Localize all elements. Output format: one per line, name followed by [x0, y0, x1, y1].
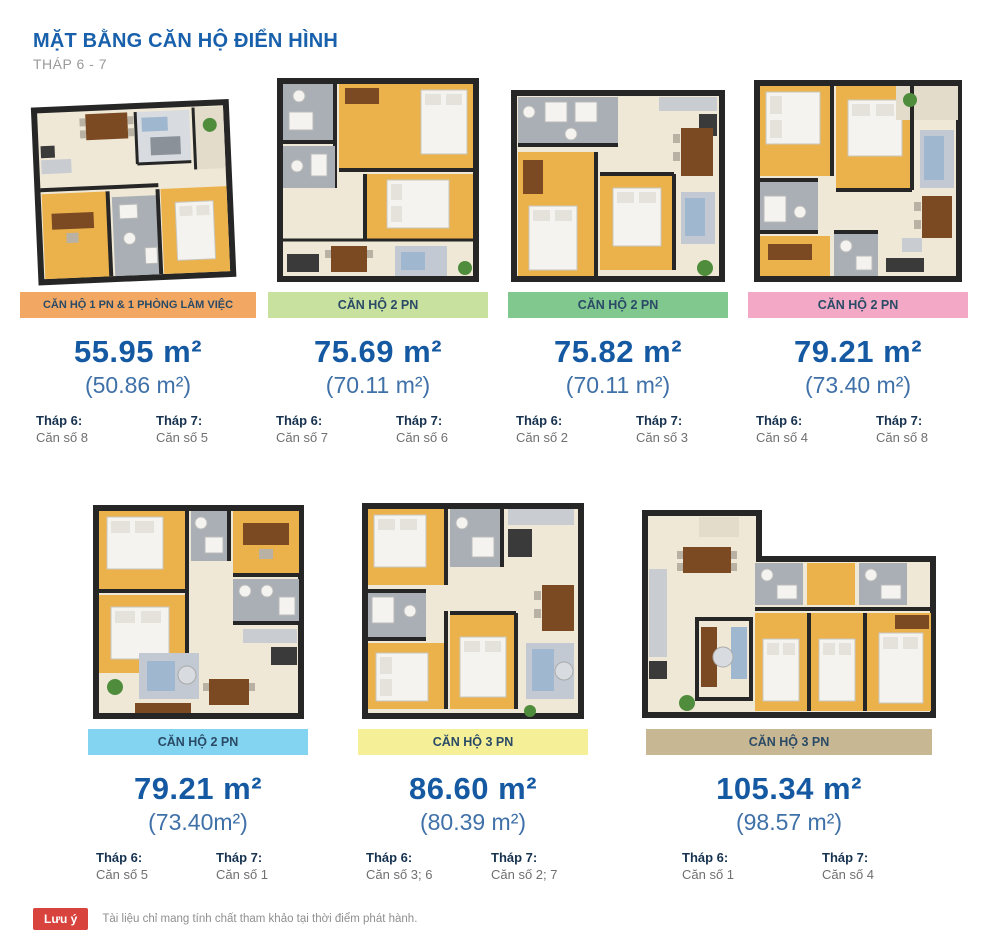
- tower-7-unit-number: Căn số 3: [636, 430, 738, 445]
- note-text: Tài liệu chỉ mang tính chất tham khảo tạ…: [102, 913, 417, 925]
- unit-type-label: CĂN HỘ 2 PN: [508, 292, 729, 318]
- floor-plan-unit-7: [639, 497, 939, 721]
- tower-6-unit-number: Căn số 7: [276, 430, 378, 445]
- tower-6-info: Tháp 6: Căn số 5: [78, 850, 198, 882]
- unit-area-net: (70.11 m²): [326, 372, 430, 399]
- tower-7-info: Tháp 7: Căn số 4: [804, 850, 944, 882]
- tower-7-info: Tháp 7: Căn số 1: [198, 850, 318, 882]
- tower-7-unit-number: Căn số 4: [822, 867, 944, 882]
- tower-7-label: Tháp 7:: [636, 413, 738, 428]
- tower-7-label: Tháp 7:: [822, 850, 944, 865]
- tower-7-info: Tháp 7: Căn số 6: [378, 413, 498, 445]
- floor-plan-unit-3: [509, 72, 727, 284]
- tower-7-info: Tháp 7: Căn số 3: [618, 413, 738, 445]
- tower-6-unit-number: Căn số 5: [96, 867, 198, 882]
- tower-info: Tháp 6: Căn số 8 Tháp 7: Căn số 5: [18, 413, 258, 445]
- tower-6-label: Tháp 6:: [756, 413, 858, 428]
- floor-plan-unit-1: [27, 67, 248, 288]
- unit-row-2: CĂN HỘ 2 PN 79.21 m² (73.40m²) Tháp 6: C…: [78, 497, 1000, 882]
- tower-7-info: Tháp 7: Căn số 5: [138, 413, 258, 445]
- tower-7-info: Tháp 7: Căn số 8: [858, 413, 978, 445]
- unit-card-6: CĂN HỘ 3 PN 86.60 m² (80.39 m²) Tháp 6: …: [348, 497, 598, 882]
- tower-6-unit-number: Căn số 2: [516, 430, 618, 445]
- tower-7-info: Tháp 7: Căn số 2; 7: [473, 850, 598, 882]
- tower-6-unit-number: Căn số 1: [682, 867, 804, 882]
- unit-card-7: CĂN HỘ 3 PN 105.34 m² (98.57 m²) Tháp 6:…: [634, 497, 944, 882]
- unit-type-label: CĂN HỘ 2 PN: [748, 292, 969, 318]
- unit-area: 105.34 m²: [716, 771, 862, 807]
- unit-type-label: CĂN HỘ 2 PN: [268, 292, 489, 318]
- unit-type-label: CĂN HỘ 1 PN & 1 PHÒNG LÀM VIỆC: [20, 292, 255, 318]
- tower-6-unit-number: Căn số 8: [36, 430, 138, 445]
- tower-7-label: Tháp 7:: [491, 850, 598, 865]
- tower-7-unit-number: Căn số 5: [156, 430, 258, 445]
- tower-7-label: Tháp 7:: [156, 413, 258, 428]
- unit-area-net: (70.11 m²): [566, 372, 670, 399]
- unit-area: 75.69 m²: [314, 334, 442, 370]
- unit-area: 79.21 m²: [794, 334, 922, 370]
- tower-7-unit-number: Căn số 1: [216, 867, 318, 882]
- unit-area: 55.95 m²: [74, 334, 202, 370]
- unit-area: 79.21 m²: [134, 771, 262, 807]
- tower-6-info: Tháp 6: Căn số 7: [258, 413, 378, 445]
- unit-type-label: CĂN HỘ 3 PN: [358, 729, 588, 755]
- tower-6-unit-number: Căn số 3; 6: [366, 867, 473, 882]
- floor-plan-unit-4: [752, 72, 964, 284]
- floor-plan-unit-6: [360, 497, 586, 721]
- tower-6-info: Tháp 6: Căn số 3; 6: [348, 850, 473, 882]
- unit-area-net: (50.86 m²): [85, 372, 191, 399]
- note-badge: Lưu ý: [33, 908, 88, 930]
- unit-card-4: CĂN HỘ 2 PN 79.21 m² (73.40 m²) Tháp 6: …: [738, 72, 978, 445]
- unit-card-1: CĂN HỘ 1 PN & 1 PHÒNG LÀM VIỆC 55.95 m² …: [18, 72, 258, 445]
- tower-7-label: Tháp 7:: [216, 850, 318, 865]
- tower-info: Tháp 6: Căn số 2 Tháp 7: Căn số 3: [498, 413, 738, 445]
- tower-info: Tháp 6: Căn số 5 Tháp 7: Căn số 1: [78, 850, 318, 882]
- tower-6-unit-number: Căn số 4: [756, 430, 858, 445]
- page-header: MẶT BẰNG CĂN HỘ ĐIỂN HÌNH THÁP 6 - 7: [0, 0, 1000, 72]
- tower-6-info: Tháp 6: Căn số 2: [498, 413, 618, 445]
- floor-plan-unit-2: [275, 72, 481, 284]
- tower-6-label: Tháp 6:: [516, 413, 618, 428]
- unit-card-2: CĂN HỘ 2 PN 75.69 m² (70.11 m²) Tháp 6: …: [258, 72, 498, 445]
- tower-7-unit-number: Căn số 6: [396, 430, 498, 445]
- tower-7-label: Tháp 7:: [876, 413, 978, 428]
- tower-6-info: Tháp 6: Căn số 4: [738, 413, 858, 445]
- unit-area-net: (98.57 m²): [736, 809, 842, 836]
- unit-row-1: CĂN HỘ 1 PN & 1 PHÒNG LÀM VIỆC 55.95 m² …: [18, 72, 1000, 445]
- tower-6-label: Tháp 6:: [276, 413, 378, 428]
- tower-6-info: Tháp 6: Căn số 1: [664, 850, 804, 882]
- unit-area-net: (73.40m²): [148, 809, 248, 836]
- unit-type-label: CĂN HỘ 2 PN: [88, 729, 309, 755]
- unit-card-3: CĂN HỘ 2 PN 75.82 m² (70.11 m²) Tháp 6: …: [498, 72, 738, 445]
- unit-area-net: (80.39 m²): [420, 809, 526, 836]
- tower-info: Tháp 6: Căn số 1 Tháp 7: Căn số 4: [634, 850, 944, 882]
- tower-6-label: Tháp 6:: [96, 850, 198, 865]
- tower-7-unit-number: Căn số 2; 7: [491, 867, 598, 882]
- tower-6-label: Tháp 6:: [36, 413, 138, 428]
- unit-card-5: CĂN HỘ 2 PN 79.21 m² (73.40m²) Tháp 6: C…: [78, 497, 318, 882]
- tower-6-label: Tháp 6:: [682, 850, 804, 865]
- tower-7-label: Tháp 7:: [396, 413, 498, 428]
- floor-plan-unit-5: [91, 497, 306, 721]
- tower-info: Tháp 6: Căn số 7 Tháp 7: Căn số 6: [258, 413, 498, 445]
- tower-info: Tháp 6: Căn số 4 Tháp 7: Căn số 8: [738, 413, 978, 445]
- tower-6-label: Tháp 6:: [366, 850, 473, 865]
- unit-area: 86.60 m²: [409, 771, 537, 807]
- unit-type-label: CĂN HỘ 3 PN: [646, 729, 931, 755]
- brochure-page: MẶT BẰNG CĂN HỘ ĐIỂN HÌNH THÁP 6 - 7: [0, 0, 1000, 943]
- tower-info: Tháp 6: Căn số 3; 6 Tháp 7: Căn số 2; 7: [348, 850, 598, 882]
- unit-area-net: (73.40 m²): [805, 372, 911, 399]
- tower-6-info: Tháp 6: Căn số 8: [18, 413, 138, 445]
- page-title: MẶT BẰNG CĂN HỘ ĐIỂN HÌNH: [33, 30, 1000, 53]
- tower-7-unit-number: Căn số 8: [876, 430, 978, 445]
- footer-note: Lưu ý Tài liệu chỉ mang tính chất tham k…: [33, 908, 1000, 930]
- unit-area: 75.82 m²: [554, 334, 682, 370]
